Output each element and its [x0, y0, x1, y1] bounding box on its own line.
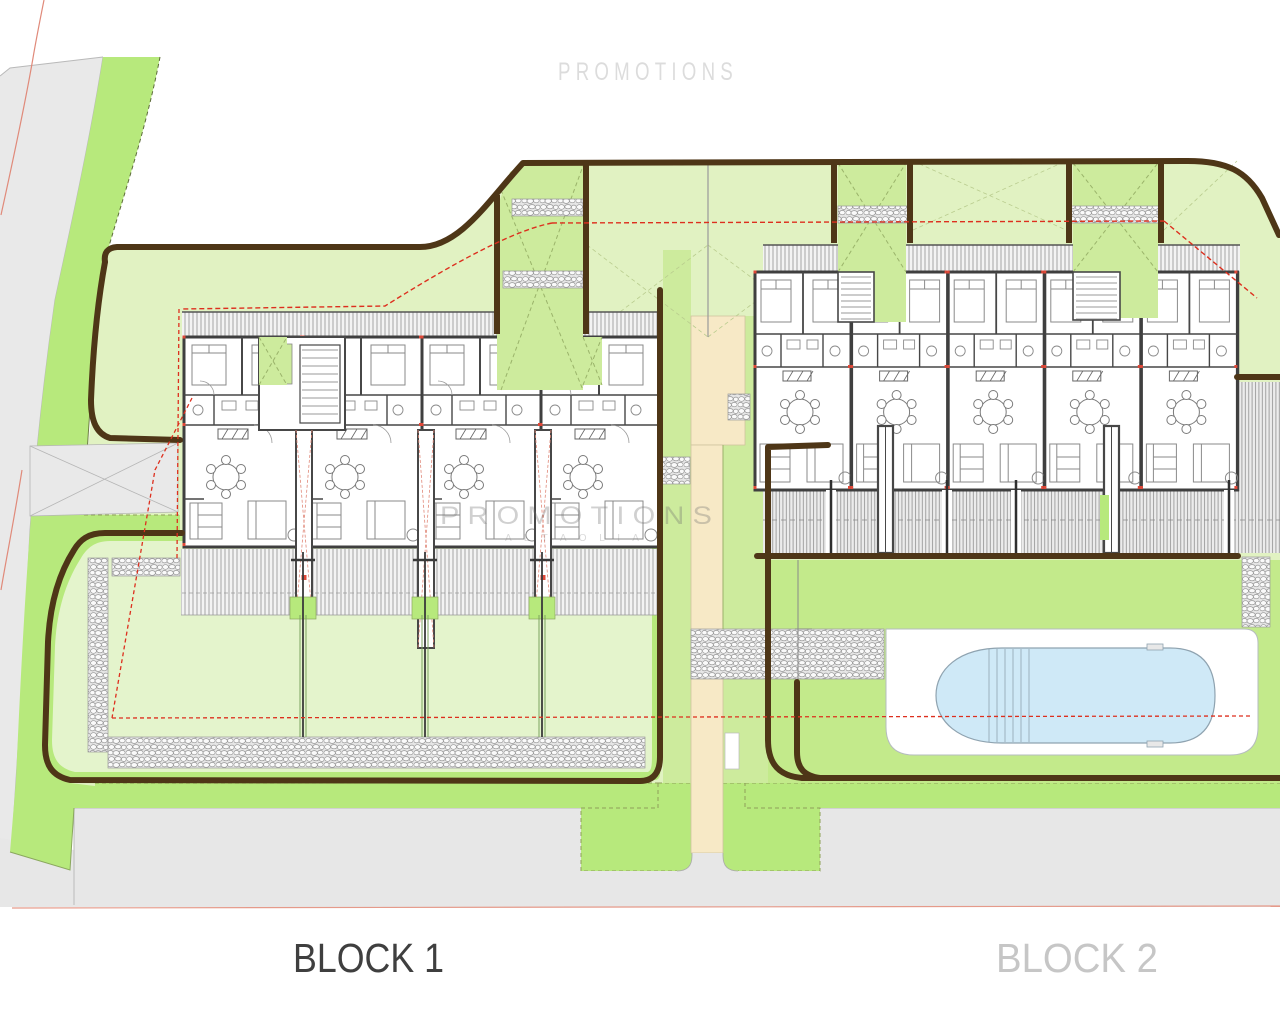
svg-text:BLOCK 1: BLOCK 1 — [293, 935, 444, 981]
svg-text:PROMOTIONS: PROMOTIONS — [440, 502, 720, 530]
svg-text:PROMOTIONS: PROMOTIONS — [558, 58, 738, 86]
svg-text:A L T A O L I A: A L T A O L I A — [505, 533, 644, 544]
svg-text:BLOCK 2: BLOCK 2 — [996, 935, 1158, 981]
